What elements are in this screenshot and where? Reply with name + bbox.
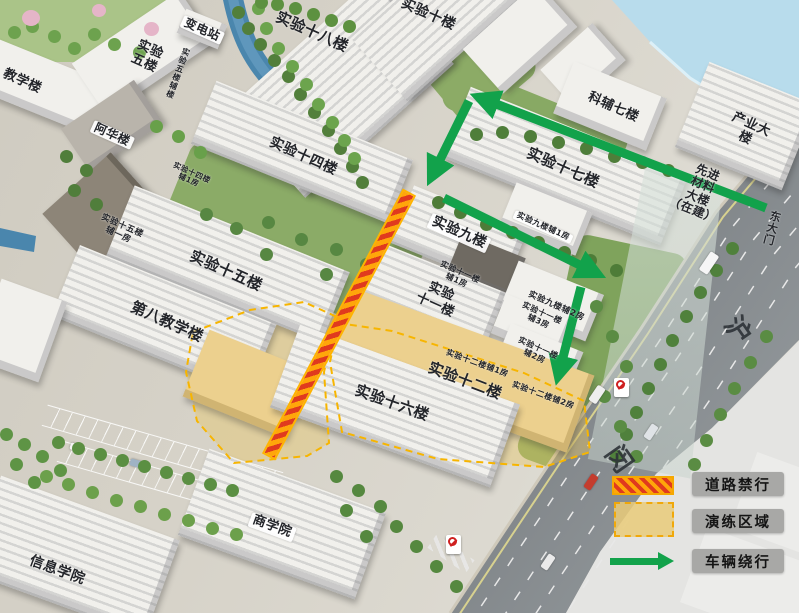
cherry-tree xyxy=(92,4,106,17)
legend-drill-swatch xyxy=(614,502,674,537)
road-car xyxy=(540,553,556,571)
legend-closure-label: 道路禁行 xyxy=(692,472,784,496)
tree-cluster-ahua xyxy=(150,120,163,133)
label-east-gate: 东大门 xyxy=(760,209,781,247)
tree-row-south17 xyxy=(432,196,445,209)
legend-detour-label: 车辆绕行 xyxy=(692,549,784,573)
building-info-school xyxy=(0,476,180,613)
tree-cluster-park xyxy=(8,26,21,39)
legend: 道路禁行 演练区域 车辆绕行 xyxy=(602,463,798,585)
building-left-mid xyxy=(0,279,67,383)
tree-row-north17 xyxy=(470,128,483,141)
tree-row-road-east xyxy=(760,330,773,343)
cherry-tree xyxy=(144,22,159,36)
tree-cluster-biz xyxy=(330,470,343,483)
tree-row-parking-2 xyxy=(40,470,53,483)
cherry-tree xyxy=(22,10,40,26)
tree-row-top xyxy=(255,0,268,9)
tree-row-river xyxy=(232,6,245,19)
no-entry-sign xyxy=(446,535,461,554)
tree-cluster-info xyxy=(0,428,13,441)
tree-cluster-15annex xyxy=(60,150,73,163)
legend-detour-arrow-icon xyxy=(610,558,658,565)
tree-cluster-lawn xyxy=(200,208,213,221)
road-name-hu: 沪 xyxy=(717,312,756,350)
tree-cluster-east-lawn xyxy=(590,300,603,313)
left-water xyxy=(0,228,36,252)
legend-closure-swatch xyxy=(612,476,674,495)
tree-row-parking-1 xyxy=(52,436,65,449)
legend-drill-label: 演练区域 xyxy=(692,509,784,533)
no-entry-sign xyxy=(614,378,629,397)
campus-map: 实验十八楼 实验十楼 变电站 实验 五楼 教学楼 阿华楼 实验五楼辅楼 实验十四… xyxy=(0,0,799,613)
tree-row-road-west xyxy=(726,242,739,255)
